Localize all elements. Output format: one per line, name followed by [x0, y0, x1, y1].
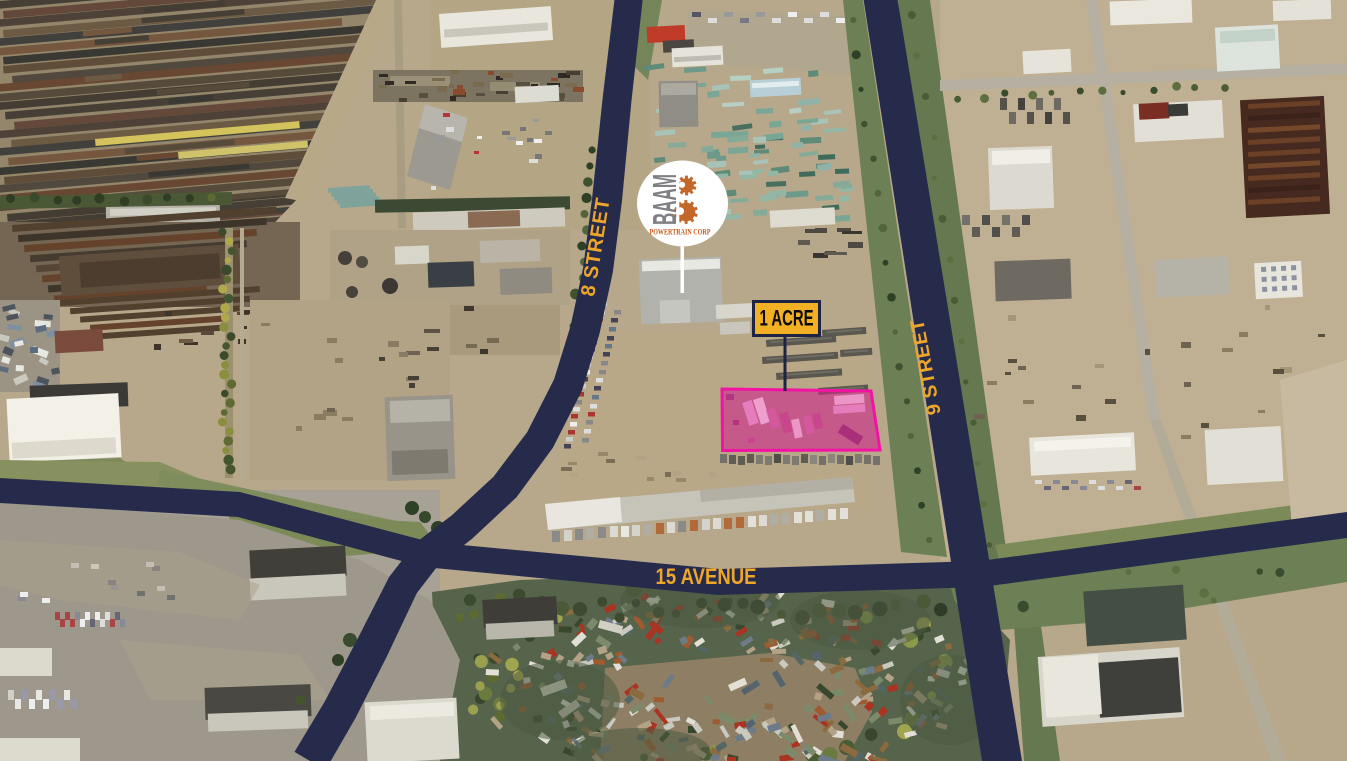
svg-text:POWERTRAIN CORP: POWERTRAIN CORP — [650, 227, 711, 237]
svg-text:1 ACRE: 1 ACRE — [760, 306, 814, 331]
svg-text:15 AVENUE: 15 AVENUE — [656, 564, 757, 589]
